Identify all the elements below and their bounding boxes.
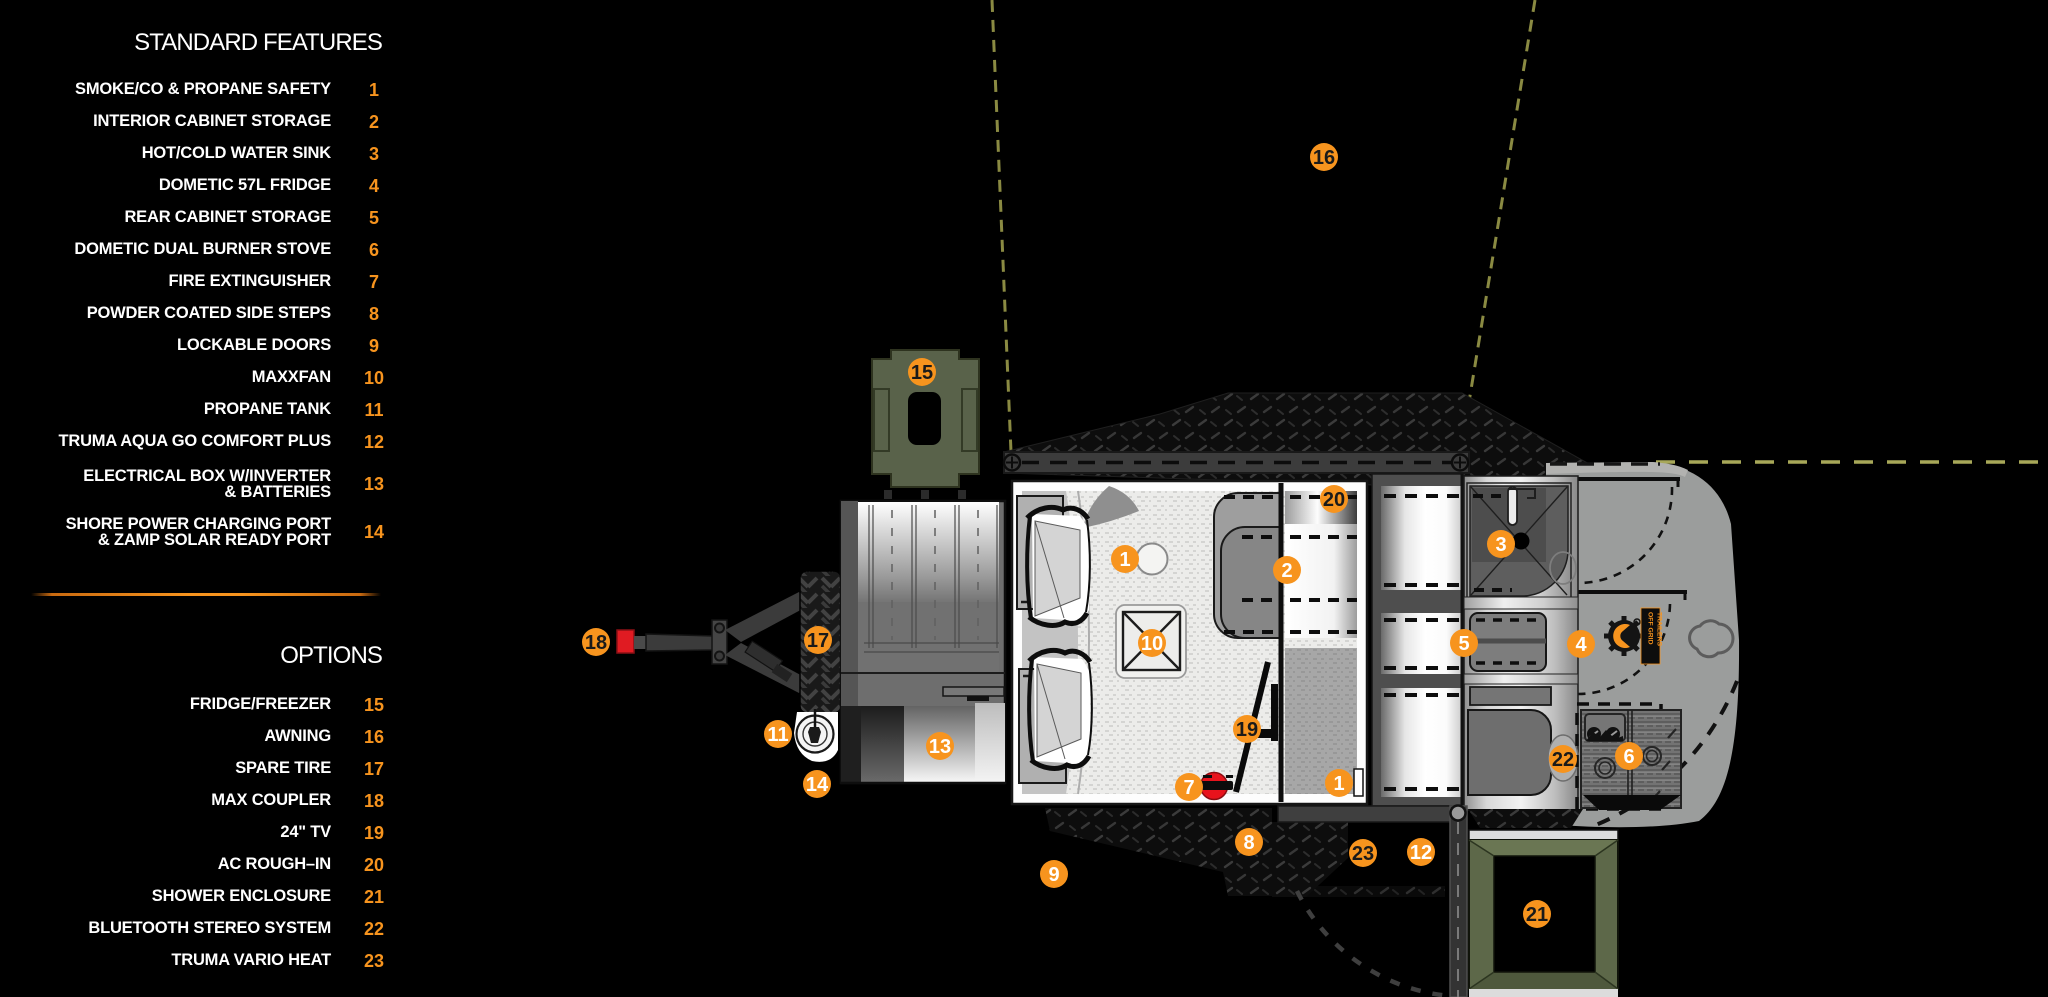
svg-text:13: 13 [929, 736, 951, 758]
svg-text:8: 8 [1243, 832, 1254, 854]
svg-text:19: 19 [1236, 719, 1258, 741]
svg-text:11: 11 [767, 724, 788, 746]
svg-text:1: 1 [1333, 773, 1344, 795]
svg-text:14: 14 [806, 774, 829, 796]
svg-text:21: 21 [1526, 904, 1548, 926]
svg-text:5: 5 [1458, 633, 1469, 655]
svg-text:7: 7 [1183, 777, 1194, 799]
svg-text:OFF GRID: OFF GRID [1647, 612, 1654, 645]
svg-text:22: 22 [1552, 749, 1574, 771]
svg-text:23: 23 [1352, 843, 1374, 865]
svg-text:6: 6 [1623, 746, 1634, 768]
svg-text:12: 12 [1410, 842, 1432, 864]
svg-text:17: 17 [807, 630, 829, 652]
svg-text:1: 1 [1119, 549, 1130, 571]
svg-text:10: 10 [1141, 633, 1163, 655]
svg-text:2: 2 [1281, 560, 1292, 582]
svg-text:18: 18 [585, 632, 607, 654]
svg-text:16: 16 [1313, 147, 1335, 169]
svg-text:15: 15 [911, 362, 933, 384]
svg-text:20: 20 [1323, 489, 1345, 511]
svg-text:TRAILERS: TRAILERS [1656, 612, 1663, 646]
svg-text:9: 9 [1048, 864, 1059, 886]
svg-text:4: 4 [1575, 634, 1587, 656]
svg-text:3: 3 [1495, 534, 1506, 556]
